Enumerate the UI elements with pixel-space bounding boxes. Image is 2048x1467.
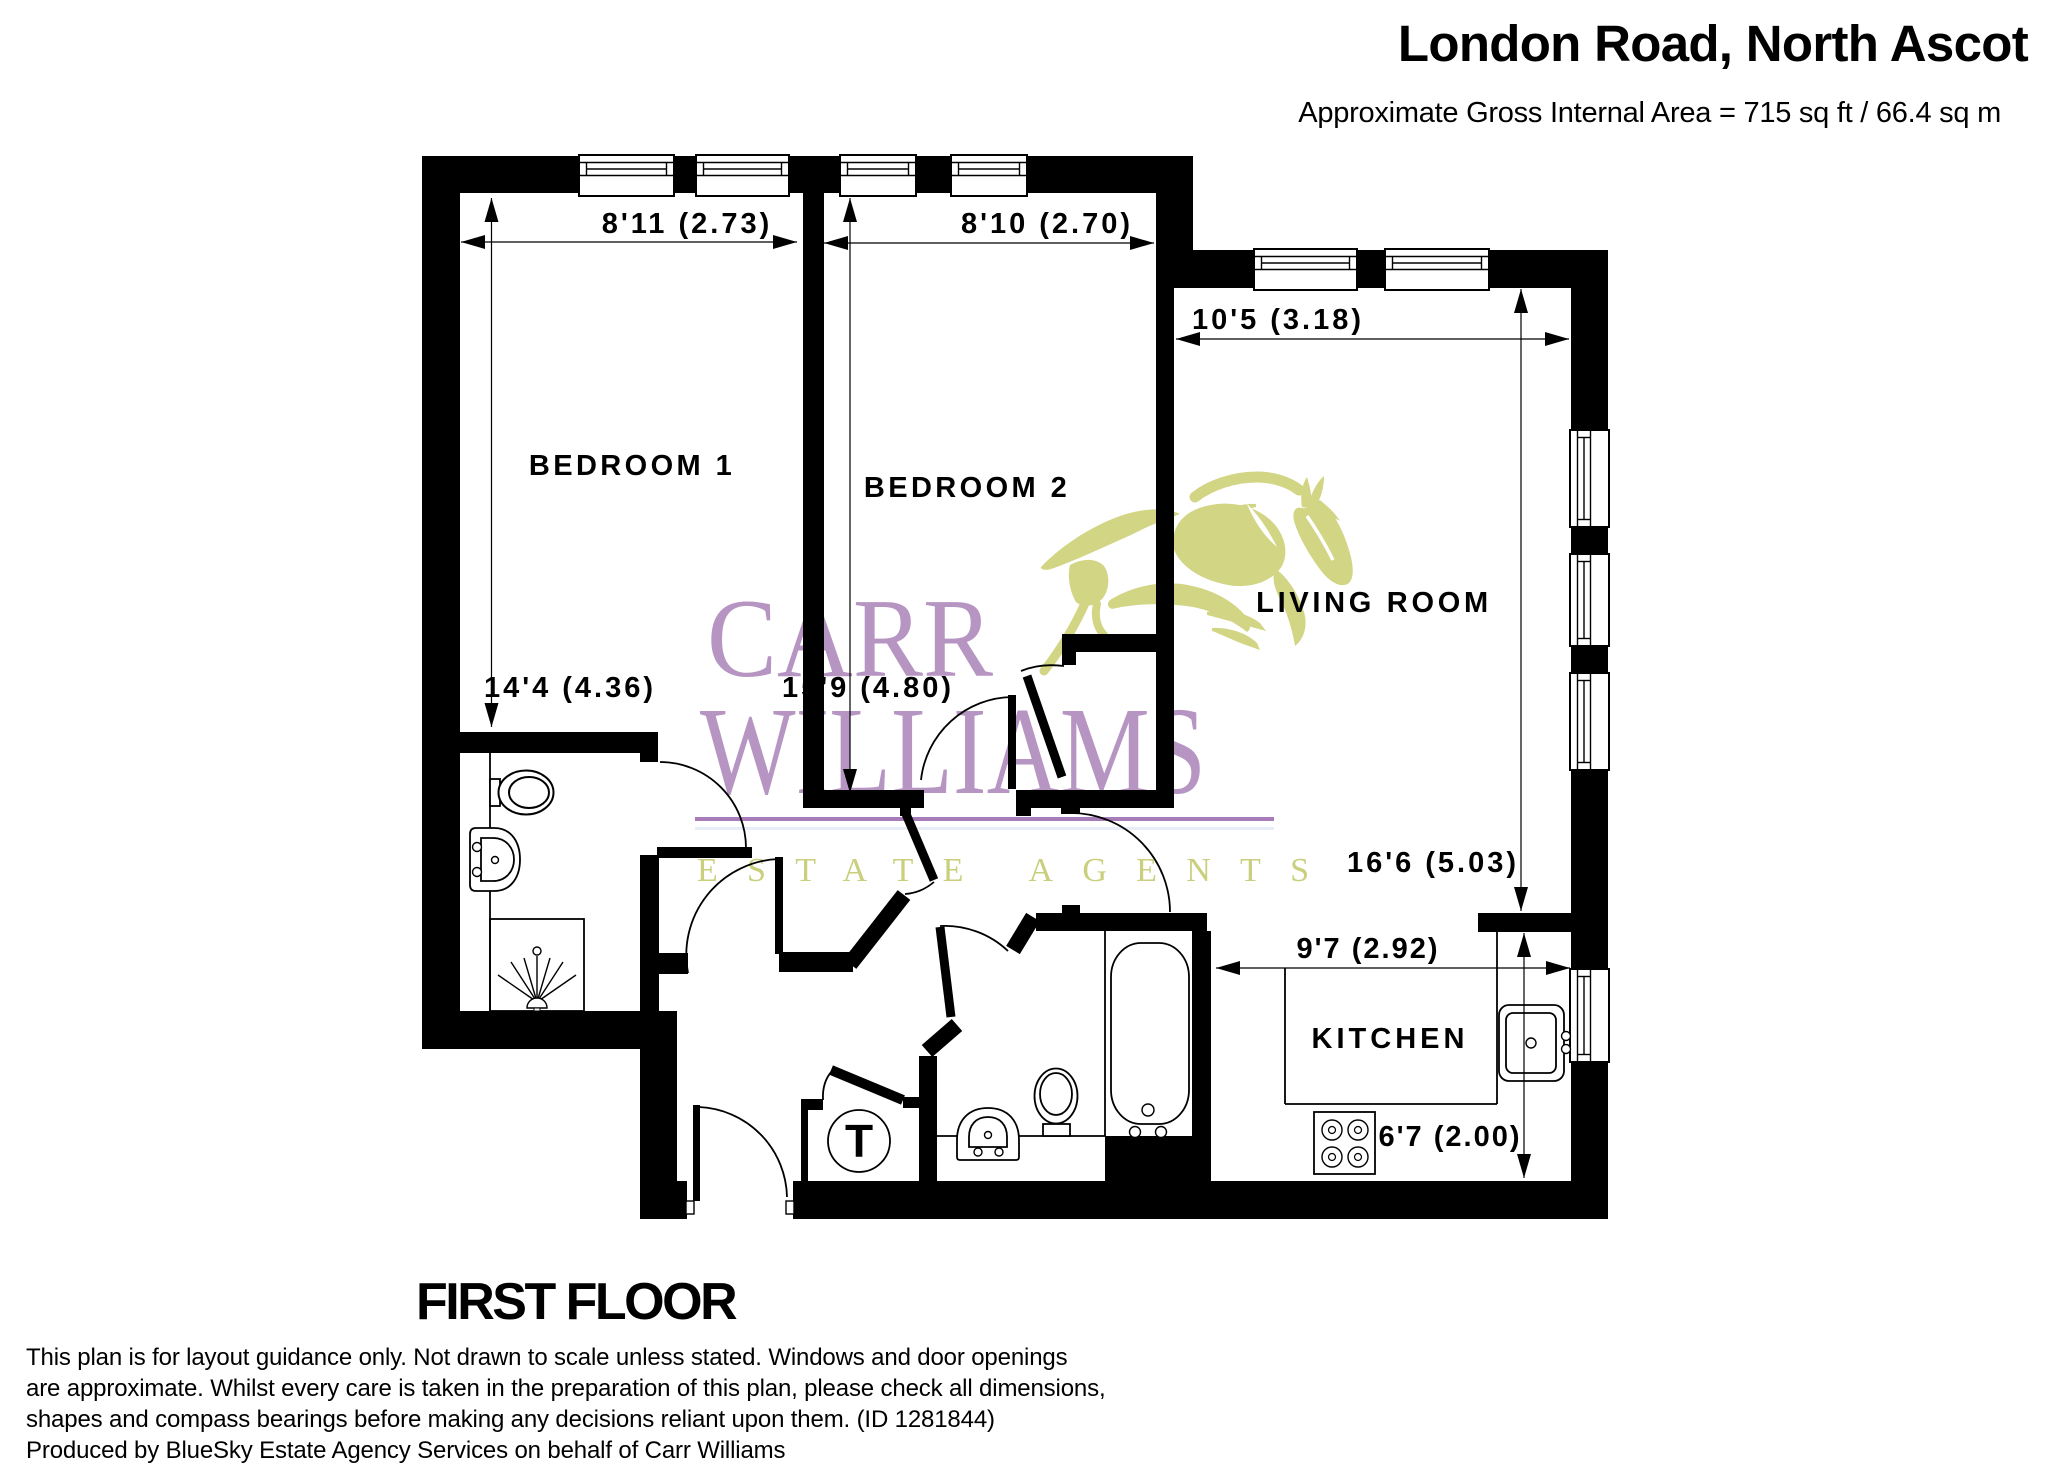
svg-text:14'4 (4.36): 14'4 (4.36) — [484, 672, 656, 704]
svg-text:This plan is for layout guidan: This plan is for layout guidance only. N… — [26, 1344, 1068, 1371]
svg-text:are approximate. Whilst every: are approximate. Whilst every care is ta… — [26, 1375, 1105, 1402]
svg-text:Approximate Gross Internal Are: Approximate Gross Internal Area = 715 sq… — [1298, 97, 2001, 129]
svg-text:15'9 (4.80): 15'9 (4.80) — [782, 672, 954, 704]
svg-text:shapes and compass bearings be: shapes and compass bearings before makin… — [26, 1406, 995, 1433]
svg-text:8'10 (2.70): 8'10 (2.70) — [961, 208, 1133, 240]
svg-text:8'11 (2.73): 8'11 (2.73) — [602, 208, 773, 240]
svg-text:Produced by BlueSky Estate Age: Produced by BlueSky Estate Agency Servic… — [26, 1437, 785, 1464]
svg-text:LIVING ROOM: LIVING ROOM — [1256, 587, 1492, 619]
svg-text:9'7 (2.92): 9'7 (2.92) — [1297, 933, 1440, 965]
svg-text:FIRST FLOOR: FIRST FLOOR — [416, 1273, 737, 1331]
svg-text:BEDROOM 2: BEDROOM 2 — [864, 472, 1070, 504]
svg-text:10'5 (3.18): 10'5 (3.18) — [1192, 304, 1364, 336]
svg-text:6'7 (2.00): 6'7 (2.00) — [1379, 1121, 1522, 1153]
svg-text:16'6 (5.03): 16'6 (5.03) — [1347, 847, 1519, 879]
svg-text:London Road, North Ascot: London Road, North Ascot — [1398, 15, 2029, 72]
svg-text:T: T — [845, 1115, 873, 1167]
svg-text:KITCHEN: KITCHEN — [1312, 1023, 1469, 1055]
svg-text:BEDROOM 1: BEDROOM 1 — [529, 450, 735, 482]
